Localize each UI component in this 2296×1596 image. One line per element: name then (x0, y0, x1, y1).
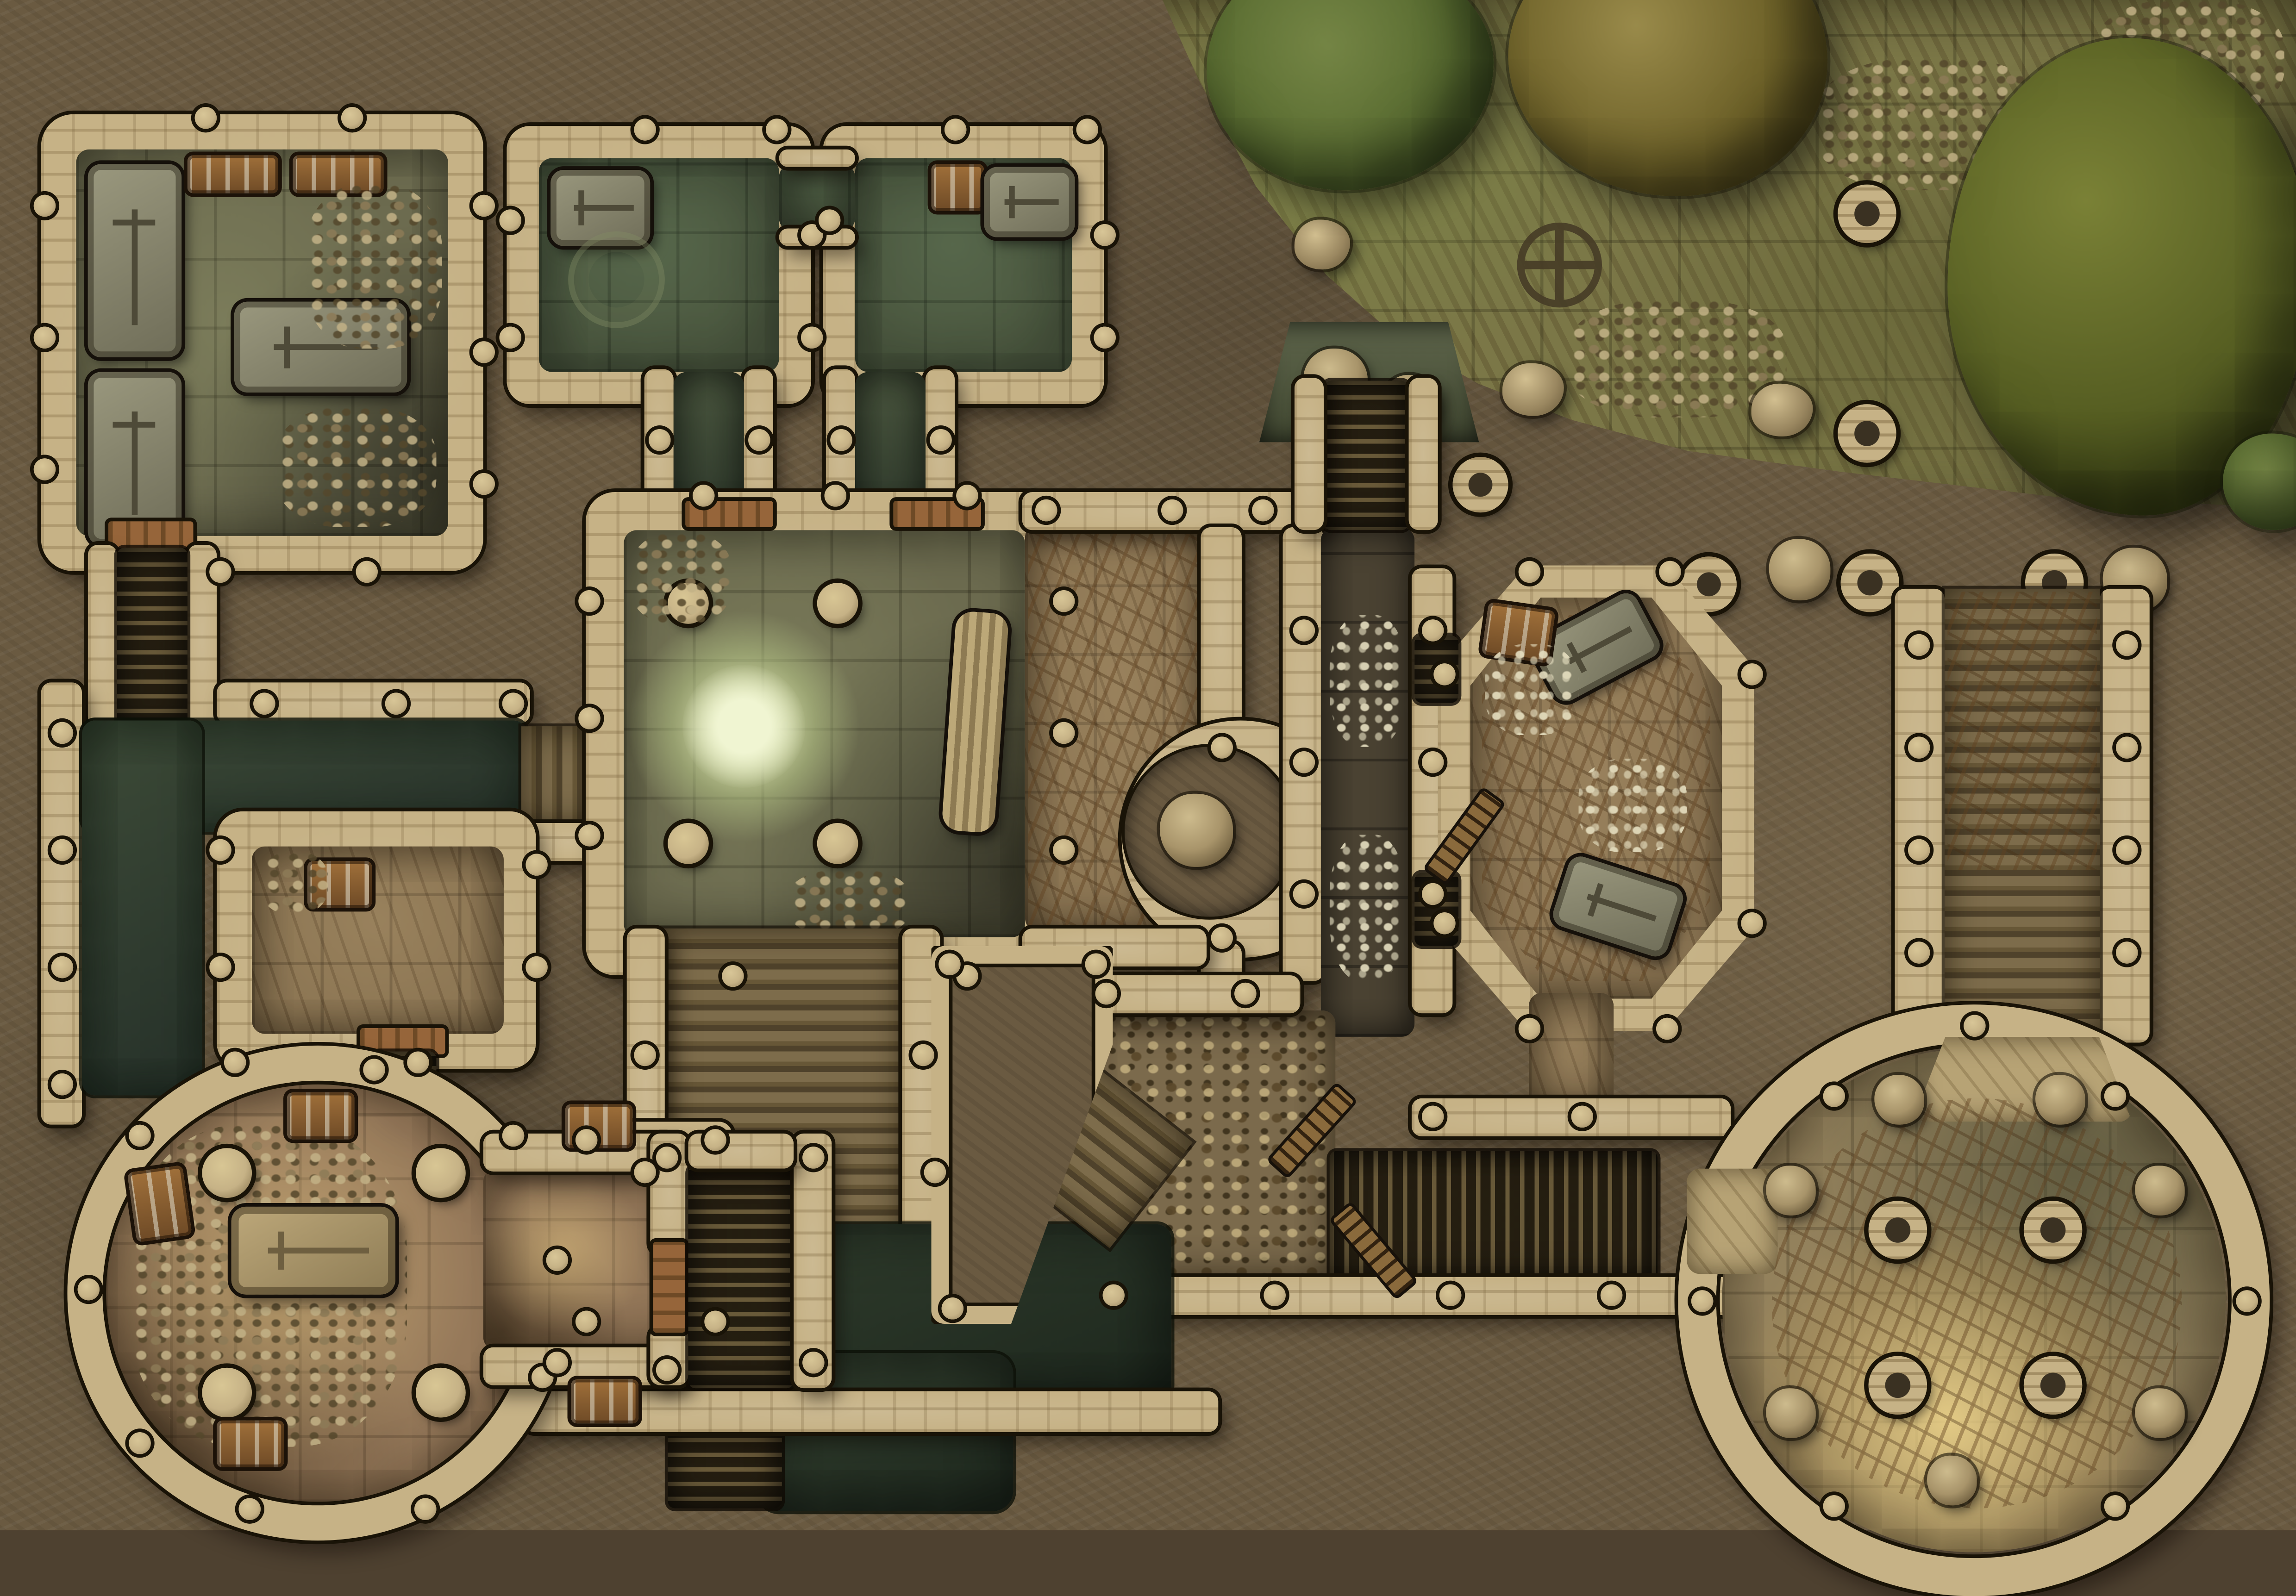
sarcophagus (231, 1207, 395, 1295)
connector-floor (779, 164, 855, 231)
treasure-chest (127, 1165, 192, 1242)
boulder (1502, 363, 1564, 416)
corridor-wall (88, 545, 117, 726)
canal-wall (41, 682, 82, 1124)
pillar-top (1838, 404, 1896, 463)
oval-pillar (416, 1148, 466, 1198)
rubble (275, 407, 437, 527)
wood-crate (931, 164, 984, 211)
ring-pillar (1869, 1201, 1927, 1259)
rubble (630, 533, 732, 624)
pillar-top (1838, 185, 1896, 243)
ossuary-south-exit (1529, 993, 1614, 1110)
wood-door (108, 521, 193, 548)
stone-coffin (88, 372, 181, 545)
boulder (1752, 384, 1813, 436)
statue-head (1160, 794, 1233, 867)
rotunda-west-gap (1687, 1169, 1777, 1274)
floor-circle-mark (568, 231, 665, 328)
stone-coffin (88, 164, 181, 357)
round-pillar (817, 583, 858, 624)
entry-stairs (1324, 381, 1408, 530)
roots-overlay (1947, 592, 2097, 870)
bone-scatter (1330, 835, 1406, 981)
stair-corridor-wall (1895, 589, 1945, 1043)
stair-corridor-wall (2100, 589, 2150, 1043)
statue-head (1874, 1075, 1924, 1125)
boulder (1295, 220, 1350, 270)
rubble (788, 870, 911, 937)
ring-pillar (2024, 1356, 2083, 1415)
treasure-chest (287, 1092, 354, 1139)
pillar-top (1841, 554, 1900, 612)
wood-door (360, 1028, 445, 1054)
corridor-wall (794, 1134, 832, 1388)
water-channel (82, 721, 202, 1096)
statue-head (2135, 1166, 2185, 1216)
roots-overlay (1772, 1098, 2182, 1509)
oval-pillar (202, 1148, 252, 1198)
pillar-top (1452, 457, 1508, 512)
room-wall (1201, 527, 1242, 735)
rubble (261, 852, 328, 914)
statue-head (1766, 1166, 1816, 1216)
entry-wall (1295, 378, 1324, 530)
bone-scatter (1330, 615, 1406, 747)
battle-map (0, 0, 2296, 1530)
wood-bridge-door (653, 1242, 686, 1333)
statue-head (1927, 1456, 1977, 1506)
rubble (305, 185, 442, 349)
round-pillar (668, 823, 709, 864)
ring-pillar (2024, 1201, 2083, 1259)
statue-head (2035, 1075, 2085, 1125)
oval-pillar (202, 1368, 252, 1418)
statue-head (2135, 1388, 2185, 1438)
entry-wall (1409, 378, 1438, 530)
connector-wall (779, 150, 855, 167)
treasure-chest (571, 1379, 638, 1423)
stone-coffin (984, 167, 1075, 237)
ring-pillar (1869, 1356, 1927, 1415)
oval-pillar (416, 1368, 466, 1418)
corridor-stairs (117, 548, 188, 729)
wood-crate (188, 155, 278, 193)
statue-head (1766, 1388, 1816, 1438)
broken-wheel (1517, 223, 1602, 307)
bone-scatter (1485, 644, 1578, 735)
bone-scatter (1578, 759, 1687, 852)
fallen-statue-head (1769, 539, 1831, 600)
treasure-chest (217, 1421, 284, 1467)
dark-stair-corridor (688, 1166, 794, 1388)
ritual-glow-core (682, 665, 806, 788)
round-pillar (817, 823, 858, 864)
